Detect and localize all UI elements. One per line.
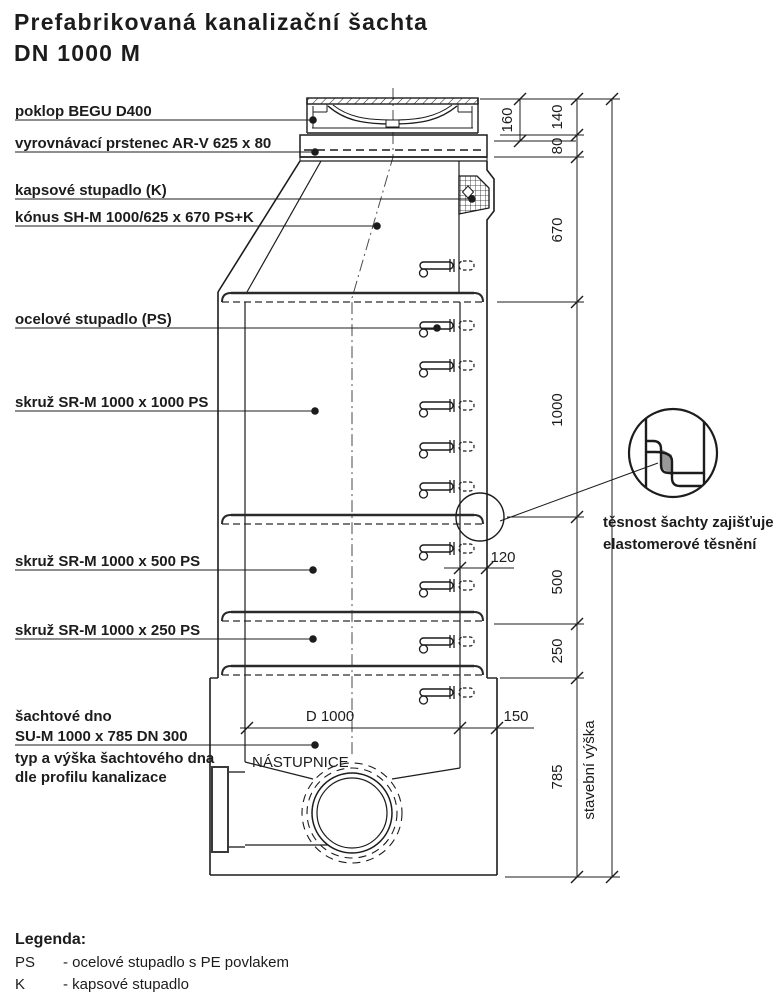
legend-key-ps: PS <box>15 954 35 971</box>
legend: Legenda: PS - ocelové stupadlo s PE povl… <box>15 931 289 993</box>
dim-670: 670 <box>549 217 566 242</box>
label-konus: kónus SH-M 1000/625 x 670 PS+K <box>15 209 254 226</box>
pocket-step <box>459 176 489 214</box>
dim-160: 160 <box>499 107 516 132</box>
dim-250: 250 <box>549 638 566 663</box>
legend-desc-k: - kapsové stupadlo <box>63 976 189 993</box>
detail-note-line2: elastomerové těsnění <box>603 536 757 553</box>
detail-note-line1: těsnost šachty zajišťuje <box>603 514 774 531</box>
page-title-line1: Prefabrikovaná kanalizační šachta <box>14 9 428 35</box>
label-ocelove-stupadlo: ocelové stupadlo (PS) <box>15 311 172 328</box>
legend-heading: Legenda: <box>15 931 86 948</box>
label-nastupnice: NÁSTUPNICE <box>252 754 349 771</box>
dim-1000: 1000 <box>549 393 566 426</box>
dim-500: 500 <box>549 569 566 594</box>
page-title-line2: DN 1000 M <box>14 40 141 66</box>
steel-steps <box>420 259 475 704</box>
dim-120: 120 <box>490 549 515 566</box>
label-poklop: poklop BEGU D400 <box>15 103 152 120</box>
label-dno-line1: šachtové dno <box>15 708 112 725</box>
label-dno-line2: SU-M 1000 x 785 DN 300 <box>15 728 188 745</box>
label-dno-note1: typ a výška šachtového dna <box>15 750 215 767</box>
dim-80: 80 <box>549 138 566 155</box>
label-dno-note2: dle profilu kanalizace <box>15 769 167 786</box>
dim-overall-label: stavební výška <box>581 720 598 820</box>
label-kapsove-stupadlo: kapsové stupadlo (K) <box>15 182 167 199</box>
outlet-socket <box>212 767 245 852</box>
label-skruz-500: skruž SR-M 1000 x 500 PS <box>15 553 200 570</box>
centerline <box>352 88 393 757</box>
legend-key-k: K <box>15 976 25 993</box>
dim-d1000: D 1000 <box>306 708 354 725</box>
dim-785: 785 <box>549 764 566 789</box>
channel-pipe-opening <box>302 763 402 863</box>
label-prstenec: vyrovnávací prstenec AR-V 625 x 80 <box>15 135 271 152</box>
dim-150: 150 <box>503 708 528 725</box>
cone <box>218 157 494 293</box>
label-skruz-1000: skruž SR-M 1000 x 1000 PS <box>15 394 208 411</box>
dim-140: 140 <box>549 104 566 129</box>
technical-drawing-page: Prefabrikovaná kanalizační šachta DN 100… <box>0 0 783 1000</box>
legend-desc-ps: - ocelové stupadlo s PE povlakem <box>63 954 289 971</box>
label-skruz-250: skruž SR-M 1000 x 250 PS <box>15 622 200 639</box>
manhole-section-drawing: Prefabrikovaná kanalizační šachta DN 100… <box>0 0 783 1000</box>
